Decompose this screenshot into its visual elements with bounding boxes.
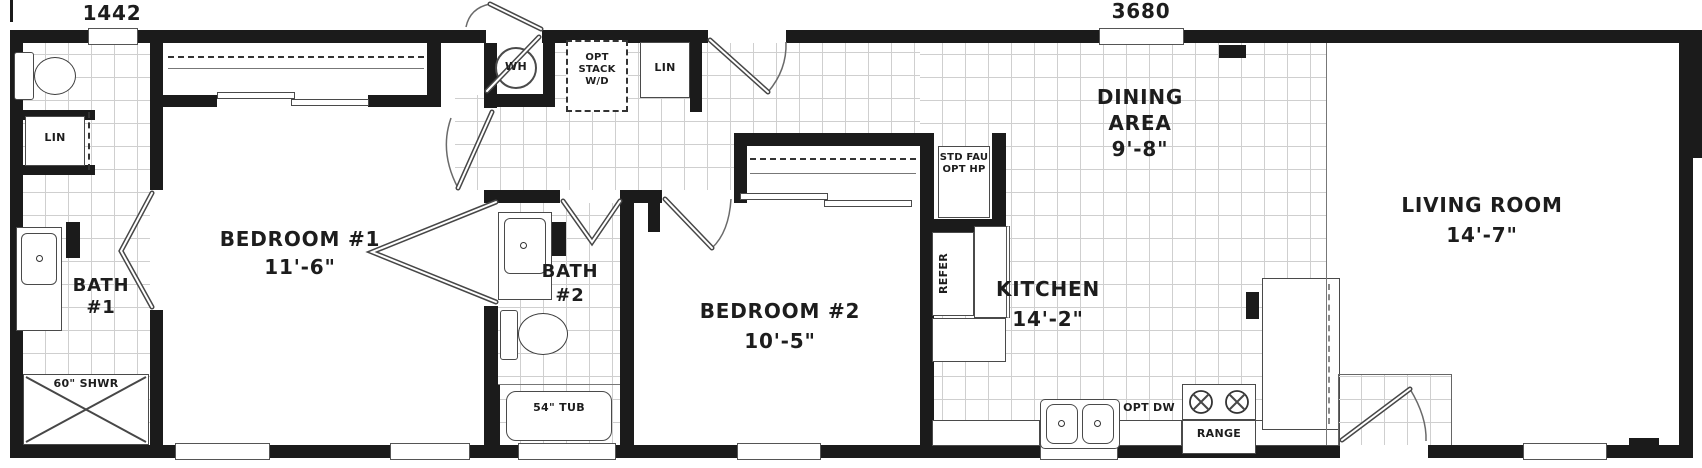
window-bedroom1-bottom-left: [175, 443, 270, 460]
bed1-closet-shelf: [168, 68, 424, 69]
tub-enclosure-line: [498, 384, 620, 385]
bath1-wall-stub: [66, 222, 80, 258]
wall-right-thick-segment: [1691, 30, 1702, 158]
dimension-left: 1442: [62, 2, 162, 24]
bed1-closet-slider-b: [291, 99, 369, 106]
kitchen-counter-left: [932, 420, 1040, 446]
bath1-number: #1: [56, 298, 146, 318]
bath2-number: #2: [520, 286, 620, 306]
entry-landing: [1338, 374, 1452, 445]
dining-label-2: AREA: [1040, 112, 1240, 134]
wall-bath1-linen-bottom: [23, 165, 95, 175]
bed2-closet-shelf: [750, 173, 916, 174]
living-room-size: 14'-7": [1362, 224, 1602, 246]
wall-hall-south-a: [484, 190, 560, 203]
bedroom2-label: BEDROOM #2: [660, 300, 900, 322]
opt-stack-label-2: STACK: [566, 64, 628, 75]
wall-linen-hall-east: [690, 30, 702, 112]
kitchen-counter-mid: [1118, 420, 1182, 446]
wall-bed1-closet-bottom-b: [368, 95, 427, 107]
bath1-label: BATH: [56, 276, 146, 296]
linen-bath1-label: LIN: [25, 132, 85, 144]
kitchen-counter-upper: [974, 226, 1010, 318]
window-bedroom1-top: [88, 28, 138, 45]
dishwasher-label: OPT DW: [1118, 402, 1180, 414]
bed2-closet-rod: [750, 158, 916, 160]
opt-stack-label-1: OPT: [566, 52, 628, 63]
water-heater-label: WH: [495, 61, 537, 73]
kitchen-switch-stub: [1246, 292, 1259, 319]
range-label: RANGE: [1182, 428, 1256, 440]
kitchen-size: 14'-2": [948, 308, 1148, 330]
range-burner-box: [1182, 384, 1256, 420]
wall-bed1-closet-bottom-a: [163, 95, 217, 107]
opt-stack-label-3: W/D: [566, 76, 628, 87]
wall-top: [10, 30, 1693, 43]
wall-bath1-bedroom1-lower: [150, 310, 163, 445]
toilet2-tank: [500, 310, 518, 360]
linen-hall-label: LIN: [640, 62, 690, 74]
living-room-label: LIVING ROOM: [1362, 194, 1602, 216]
toilet1-bowl: [34, 57, 76, 95]
bath1-faucet-icon: [36, 255, 43, 262]
shower-label: 60" SHWR: [28, 378, 144, 390]
dining-label-1: DINING: [1040, 86, 1240, 108]
bed1-closet-rod: [168, 56, 424, 58]
window-bedroom1-bottom-right: [390, 443, 470, 460]
wall-bed2-closet-north: [734, 133, 932, 146]
toilet1-tank: [14, 52, 34, 100]
fau-label-2: OPT HP: [938, 164, 990, 175]
kitchen-label: KITCHEN: [948, 278, 1148, 300]
window-bedroom2-bottom: [737, 443, 821, 460]
tub-label: 54" TUB: [506, 402, 612, 414]
door-gap-entry: [1340, 445, 1428, 458]
bed1-closet-slider-a: [217, 92, 295, 99]
dimension-right: 3680: [1091, 0, 1191, 22]
wall-fau-east: [992, 133, 1006, 232]
wall-bath1-bedroom1-upper: [150, 43, 163, 190]
floor-plan: 1442 3680 BATH #1 BEDROOM #1 11'-6" BATH…: [0, 0, 1702, 468]
window-bath2-tub: [518, 443, 616, 460]
bathtub: [506, 391, 612, 441]
window-living-bottom: [1523, 443, 1607, 460]
window-dining-top: [1099, 28, 1184, 45]
floor-transition-line: [1326, 43, 1327, 445]
bath2-label: BATH: [520, 262, 620, 282]
wall-tub-stub: [490, 384, 500, 445]
door-gap-hall-exterior: [708, 30, 786, 43]
bath2-faucet-icon: [520, 242, 527, 249]
living-wall-marker: [1629, 438, 1659, 452]
dimension-tick-left: [10, 0, 13, 22]
bed2-closet-slider-a: [740, 193, 828, 200]
sink-drain-left-icon: [1058, 420, 1065, 427]
bar-counter-dashed-edge: [1328, 284, 1330, 424]
dining-ceiling-marker: [1219, 45, 1246, 58]
bed2-closet-slider-b: [824, 200, 912, 207]
refrigerator-label: REFER: [938, 244, 968, 304]
bedroom2-door-stub: [648, 196, 660, 232]
bath2-wall-stub: [552, 222, 566, 256]
sink-drain-right-icon: [1094, 420, 1101, 427]
bedroom1-size: 11'-6": [180, 256, 420, 278]
bedroom1-corner-nook: [455, 43, 484, 95]
dining-size: 9'-8": [1040, 138, 1240, 160]
fau-label-1: STD FAU: [938, 152, 990, 163]
bedroom1-label: BEDROOM #1: [180, 228, 420, 250]
wall-bed1-closet-end: [427, 30, 441, 107]
wall-bath2-east: [620, 190, 634, 445]
linen-bath1-door: [88, 112, 90, 170]
toilet2-bowl: [518, 313, 568, 355]
door-gap-wh-exterior: [486, 30, 542, 43]
bedroom2-size: 10'-5": [660, 330, 900, 352]
wall-wh-bottom: [484, 94, 555, 107]
